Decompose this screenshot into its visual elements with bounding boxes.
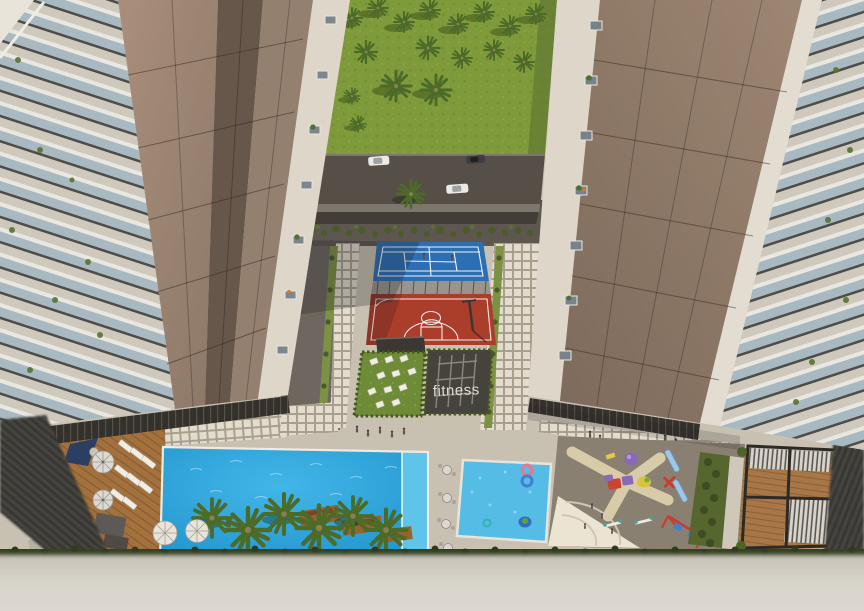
deck-umbrella — [92, 451, 114, 473]
car — [466, 155, 486, 164]
fitness-ground-label: fitness — [433, 381, 480, 400]
right-tower — [528, 0, 864, 450]
pool-float-turtle — [519, 517, 532, 528]
palm-park — [318, 0, 557, 154]
main-pool — [153, 447, 428, 560]
scene-canvas: fitness — [0, 0, 864, 611]
tennis-player — [451, 255, 453, 261]
street-palm — [398, 181, 425, 208]
pool-umbrella — [153, 521, 177, 545]
kids-pool — [457, 460, 551, 542]
deck-umbrella — [93, 490, 113, 510]
car — [446, 183, 469, 194]
pergola-slat-roof — [784, 498, 830, 544]
access-road — [306, 154, 545, 214]
foreground-parapet — [0, 555, 864, 611]
pergola-lounge — [736, 446, 841, 551]
pool-umbrella — [186, 520, 209, 543]
car — [368, 156, 390, 166]
tennis-player — [423, 253, 425, 259]
aerial-rendering: fitness — [0, 0, 864, 611]
play-dome — [625, 453, 638, 466]
